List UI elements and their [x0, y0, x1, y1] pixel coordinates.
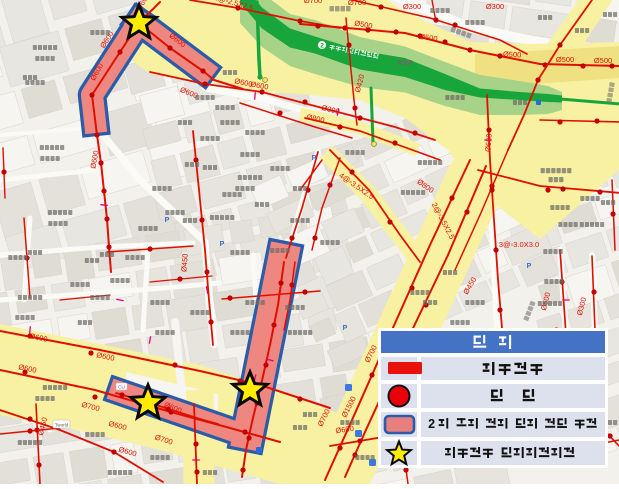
- svg-text:Ø600: Ø600: [483, 133, 494, 152]
- svg-text:Ø500: Ø500: [503, 50, 522, 60]
- svg-text:Ø700: Ø700: [348, 0, 366, 7]
- svg-text:Ø500: Ø500: [594, 56, 612, 65]
- svg-text:Ø300: Ø300: [403, 2, 421, 11]
- svg-text:2: 2: [320, 43, 324, 50]
- svg-text:Ø300: Ø300: [486, 2, 504, 11]
- svg-text:2: 2: [428, 417, 435, 431]
- svg-text:Ø450: Ø450: [179, 253, 190, 272]
- svg-text:CU: CU: [118, 385, 125, 390]
- svg-text:P: P: [165, 217, 170, 224]
- svg-text:P: P: [220, 241, 225, 248]
- svg-text:Ø700: Ø700: [304, 0, 322, 5]
- svg-text:P: P: [312, 155, 317, 162]
- svg-text:P: P: [343, 325, 348, 332]
- svg-text:P: P: [527, 263, 532, 270]
- svg-text:Tworld: Tworld: [55, 423, 69, 428]
- svg-text:Ø500: Ø500: [556, 55, 574, 64]
- svg-text:3@▫3.0X3.0: 3@▫3.0X3.0: [499, 240, 539, 249]
